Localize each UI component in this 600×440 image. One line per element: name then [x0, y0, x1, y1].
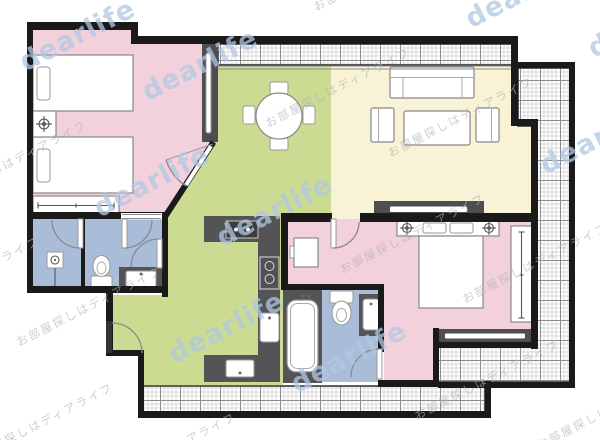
floorplan-svg	[0, 0, 600, 440]
toilet-2	[330, 287, 353, 325]
double-bed	[419, 236, 483, 308]
balcony-top	[218, 44, 515, 65]
pillow-4	[450, 223, 473, 233]
door-leaf-bedroom-2	[331, 219, 336, 248]
balcony-bottom	[143, 386, 485, 412]
pillow-3	[423, 223, 446, 233]
dining-table	[256, 93, 302, 139]
bathtub	[287, 300, 318, 372]
coffee-table	[404, 111, 470, 145]
floorplan-canvas: dearlifeお部屋探しはディアライフdearlifeお部屋探しはディアライフ…	[0, 0, 600, 440]
armchair-right	[476, 108, 499, 142]
entrance-door-leaf	[106, 321, 112, 353]
armchair-left	[371, 108, 394, 142]
toilet-1	[91, 256, 112, 290]
door-leaf-bathroom	[377, 349, 382, 379]
pillow-2	[37, 149, 50, 182]
dresser	[294, 238, 318, 267]
stove-icon	[226, 221, 258, 238]
dresser-handle	[290, 246, 294, 258]
pillow-1	[37, 67, 50, 100]
